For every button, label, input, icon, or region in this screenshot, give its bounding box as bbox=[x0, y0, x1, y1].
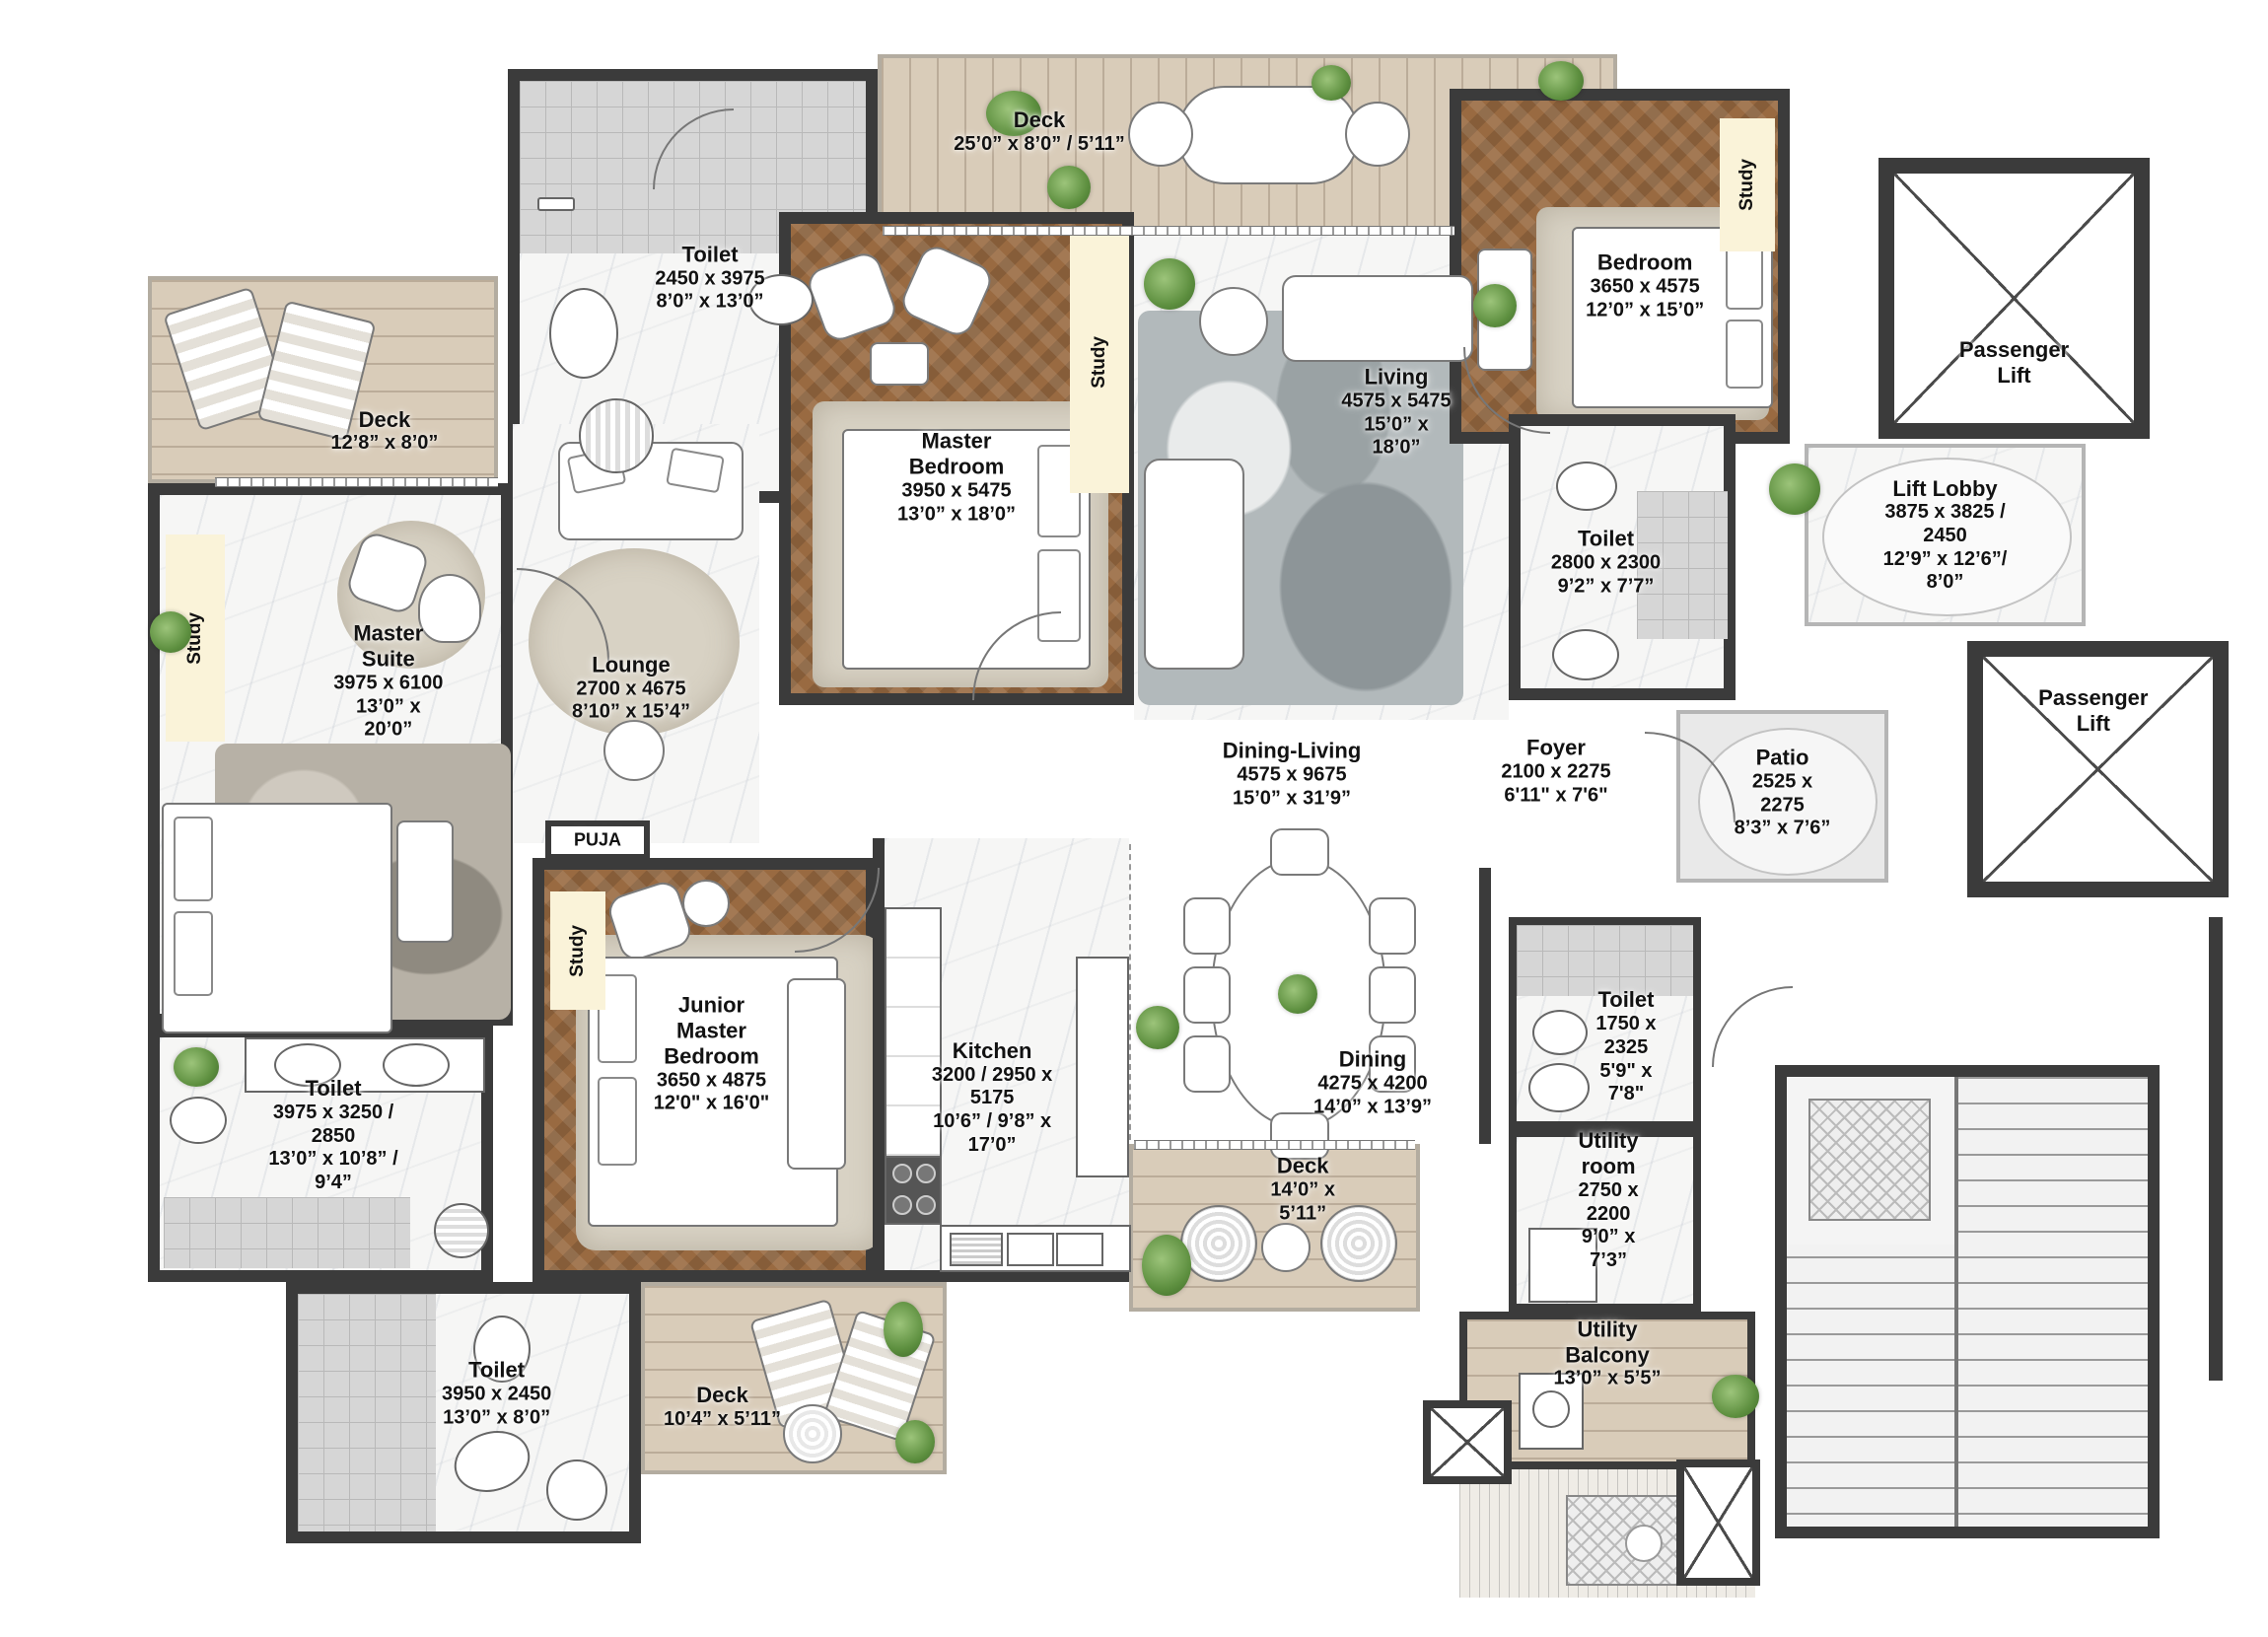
room-label-dining-living: Dining-Living4575 x 967515’0” x 31’9” bbox=[1223, 738, 1362, 810]
side-table bbox=[682, 880, 730, 927]
balcony-rail bbox=[883, 226, 1454, 236]
shower-head bbox=[537, 197, 575, 211]
room-master-suite: Study Master Suite3975 x 610013’0” x 20’… bbox=[148, 483, 513, 1026]
passenger-lift-2: Passenger Lift bbox=[1967, 641, 2229, 897]
dining-chair bbox=[1183, 897, 1231, 955]
plant-icon bbox=[1712, 1375, 1759, 1418]
room-label-toilet-b: Toilet3950 x 245013’0” x 8’0” bbox=[442, 1358, 551, 1430]
room-utility-room: Utility room2750 x 22009’0” x 7’3” bbox=[1509, 1129, 1701, 1312]
study-nook: Study bbox=[550, 891, 605, 1010]
plant-icon bbox=[1136, 1006, 1179, 1049]
study-nook: Study bbox=[1720, 118, 1775, 251]
study-label: Study bbox=[1089, 336, 1110, 389]
dining-chair bbox=[1183, 1035, 1231, 1093]
stair-hall bbox=[1775, 1065, 2160, 1538]
dining-chair bbox=[1270, 828, 1329, 876]
dining-chair bbox=[1369, 966, 1416, 1024]
side-table bbox=[870, 342, 929, 386]
room-toilet-small: Toilet1750 x 23255'9" x 7'8" bbox=[1509, 917, 1701, 1129]
room-label-deck-top: Deck25’0” x 8’0” / 5’11” bbox=[954, 107, 1124, 157]
room-label-patio: Patio2525 x 22758’3” x 7’6” bbox=[1732, 746, 1834, 841]
room-label-master-suite: Master Suite3975 x 610013’0” x 20’0” bbox=[332, 621, 445, 743]
room-label-toilet-mid: Toilet2800 x 23009’2” x 7’7” bbox=[1551, 527, 1661, 599]
bench bbox=[396, 820, 454, 943]
room-label-master-bedroom: Master Bedroom3950 x 547513’0” x 18’0” bbox=[874, 428, 1039, 526]
wall-segment bbox=[1479, 868, 1491, 1144]
sink bbox=[1528, 1063, 1590, 1112]
plant-icon bbox=[1144, 258, 1195, 310]
room-kitchen: Kitchen3200 / 2950 x 517510’6” / 9’8” x … bbox=[873, 838, 1129, 1282]
plant-icon bbox=[150, 611, 191, 653]
room-label-lift-lobby: Lift Lobby3875 x 3825 / 245012’9” x 12’6… bbox=[1877, 475, 2014, 594]
plant-icon bbox=[1311, 65, 1351, 101]
balcony-rail bbox=[1134, 1140, 1415, 1150]
sink-basin bbox=[1007, 1233, 1054, 1266]
room-label-deck-left: Deck12’8” x 8’0” bbox=[330, 407, 438, 457]
dining-chair bbox=[1369, 897, 1416, 955]
floor-plan-canvas: Deck25’0” x 8’0” / 5’11” Deck12’8” x 8’0… bbox=[0, 0, 2268, 1637]
kitchen-opening-dashed-line bbox=[1129, 844, 1131, 1140]
wall-segment bbox=[2209, 917, 2223, 1381]
passenger-lift-1: Passenger Lift bbox=[1878, 158, 2150, 439]
shower-tiles bbox=[298, 1294, 436, 1531]
shower-tiles bbox=[1517, 925, 1693, 996]
room-label-lounge: Lounge2700 x 46758’10” x 15’4” bbox=[572, 652, 690, 724]
passenger-lift-label: Passenger Lift bbox=[2033, 685, 2153, 737]
study-label: Study bbox=[567, 925, 589, 977]
pillow bbox=[174, 911, 213, 996]
burner bbox=[892, 1195, 912, 1215]
drain-icon bbox=[1625, 1525, 1663, 1562]
room-label-toilet-bl: Toilet3975 x 3250 / 285013’0” x 10’8” / … bbox=[259, 1076, 407, 1194]
room-label-living: Living4575 x 547515’0” x 18’0” bbox=[1340, 365, 1453, 461]
outdoor-chair bbox=[1128, 102, 1193, 167]
service-shaft bbox=[1676, 1459, 1760, 1586]
passenger-lift-label: Passenger Lift bbox=[1954, 337, 2075, 389]
coffee-table bbox=[1199, 287, 1268, 356]
pillow bbox=[174, 817, 213, 901]
landing-mat bbox=[1808, 1099, 1931, 1221]
stove bbox=[885, 1156, 942, 1225]
table-centerpiece bbox=[1278, 974, 1317, 1014]
plant-icon bbox=[1473, 284, 1517, 327]
stair-stringer bbox=[1954, 1077, 1958, 1527]
room-master-bedroom: Study Master Bedroom3950 x 547513’0” x 1… bbox=[779, 212, 1134, 705]
cushion bbox=[666, 448, 725, 494]
sink bbox=[1552, 629, 1619, 680]
plant-icon bbox=[1047, 166, 1091, 209]
room-deck-left: Deck12’8” x 8’0” bbox=[148, 276, 498, 483]
service-shaft bbox=[1423, 1400, 1512, 1484]
room-label-kitchen: Kitchen3200 / 2950 x 517510’6” / 9’8” x … bbox=[924, 1038, 1061, 1157]
side-table bbox=[603, 720, 665, 781]
sink bbox=[549, 288, 618, 379]
sofa bbox=[1282, 275, 1473, 362]
room-living: Living4575 x 547515’0” x 18’0” bbox=[1134, 232, 1509, 720]
plant-icon bbox=[884, 1302, 923, 1357]
laundry-basket bbox=[579, 398, 654, 473]
plant-icon bbox=[895, 1420, 935, 1463]
room-label-bedroom: Bedroom3650 x 457512’0” x 15’0” bbox=[1586, 250, 1704, 322]
room-label-toilet-small: Toilet1750 x 23255'9" x 7'8" bbox=[1593, 987, 1660, 1105]
room-label-dining: Dining4275 x 420014’0” x 13’9” bbox=[1313, 1046, 1432, 1118]
shower-drain bbox=[434, 1203, 489, 1258]
room-toilet-mid: Toilet2800 x 23009’2” x 7’7” bbox=[1509, 414, 1736, 700]
burner bbox=[916, 1195, 936, 1215]
room-label-utility-room: Utility room2750 x 22009’0” x 7’3” bbox=[1566, 1128, 1651, 1272]
wardrobe bbox=[787, 978, 846, 1170]
outdoor-table bbox=[1177, 86, 1359, 184]
toilet-wc bbox=[170, 1097, 227, 1144]
burner bbox=[892, 1164, 912, 1183]
armchair bbox=[804, 249, 899, 344]
room-label-junior-master: Junior Master Bedroom3650 x 487512'0" x … bbox=[634, 992, 788, 1115]
room-label-utility-balcony: Utility Balcony13’0” x 5’5” bbox=[1537, 1317, 1677, 1391]
outdoor-side-table bbox=[783, 1404, 842, 1463]
balcony-rail bbox=[215, 477, 498, 487]
room-label-deck-mid: Deck14’0” x 5’11” bbox=[1246, 1154, 1360, 1226]
room-lift-lobby: Lift Lobby3875 x 3825 / 245012’9” x 12’6… bbox=[1805, 444, 2086, 626]
toilet-wc bbox=[1532, 1010, 1588, 1055]
plant-icon bbox=[1769, 463, 1820, 515]
washing-machine-drum bbox=[1532, 1390, 1570, 1428]
sink bbox=[546, 1459, 607, 1521]
room-toilet-bottom: Toilet3950 x 245013’0” x 8’0” bbox=[286, 1282, 641, 1543]
room-label-foyer: Foyer2100 x 22756'11" x 7'6" bbox=[1501, 735, 1610, 807]
door-arc bbox=[1712, 986, 1793, 1067]
study-nook: Study bbox=[1070, 232, 1129, 493]
room-label-deck-bottom: Deck10’4” x 5’11” bbox=[664, 1384, 781, 1433]
kitchen-island bbox=[1076, 957, 1129, 1177]
outdoor-chair bbox=[1345, 102, 1410, 167]
shower-tiles bbox=[164, 1197, 410, 1268]
toilet-wc bbox=[1556, 462, 1617, 511]
pillow bbox=[598, 1077, 637, 1166]
plant-icon bbox=[1142, 1235, 1191, 1296]
burner bbox=[916, 1164, 936, 1183]
plant-icon bbox=[1538, 61, 1584, 101]
puja-label: PUJA bbox=[574, 829, 621, 850]
plant-icon bbox=[174, 1047, 219, 1087]
bed bbox=[162, 803, 392, 1033]
room-puja: PUJA bbox=[545, 820, 650, 860]
bidet bbox=[447, 1421, 538, 1501]
chaise bbox=[1144, 459, 1244, 670]
drainboard bbox=[950, 1233, 1003, 1266]
study-label: Study bbox=[1736, 159, 1758, 211]
sink-basin bbox=[1056, 1233, 1103, 1266]
outdoor-side-table bbox=[1261, 1223, 1311, 1272]
dining-chair bbox=[1183, 966, 1231, 1024]
kitchen-counter bbox=[940, 1225, 1131, 1272]
armchair bbox=[897, 242, 996, 340]
room-label-toilet-tl: Toilet2450 x 39758’0” x 13’0” bbox=[655, 242, 764, 314]
pillow bbox=[1726, 320, 1763, 389]
